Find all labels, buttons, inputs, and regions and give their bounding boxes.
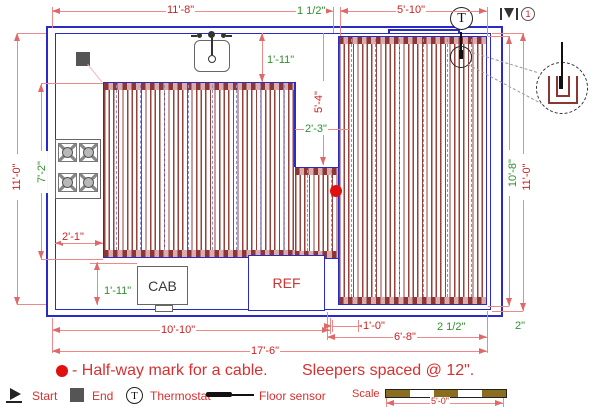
ref-label: REF <box>273 275 301 291</box>
dim-arrow <box>52 348 60 354</box>
dim-bottom-right-width: 6'-8" <box>393 331 417 343</box>
cable-start-triangle-icon <box>504 8 514 18</box>
extension-line <box>41 259 103 260</box>
extension-line <box>487 311 488 353</box>
end-legend-icon <box>70 388 84 402</box>
dim-total-width: 17'-6" <box>250 345 280 357</box>
sleeper-line <box>331 170 332 256</box>
sleeper-line <box>399 39 400 302</box>
extension-line <box>492 311 523 312</box>
burner-circle <box>83 147 94 158</box>
floor-sensor-legend-text: Floor sensor <box>259 389 326 403</box>
dim-line <box>332 326 358 327</box>
dim-bottom-left-width: 10'-10" <box>160 324 196 336</box>
sleeper-line <box>375 39 376 302</box>
scale-label: Scale <box>352 388 380 400</box>
extension-line <box>41 83 103 84</box>
dim-arrow <box>506 298 512 306</box>
cab-handle <box>155 305 173 312</box>
dim-arrow <box>94 297 100 305</box>
dim-arrow <box>14 33 20 41</box>
sink-faucet-handle <box>197 33 202 38</box>
burner-circle <box>62 177 73 188</box>
scale-length-text: 5'-0" <box>430 397 450 407</box>
cab-label: CAB <box>148 278 177 294</box>
sleeper-line <box>351 39 352 302</box>
dim-arrow <box>340 8 348 14</box>
dim-arrow <box>386 400 394 406</box>
sleeper-line <box>116 85 117 255</box>
cab-box: CAB <box>137 266 188 305</box>
dim-arrow <box>324 323 332 329</box>
thermostat-lead-line <box>388 29 390 34</box>
extension-line <box>333 7 334 33</box>
floor-sensor-legend-line <box>232 394 254 396</box>
dim-arrow <box>259 33 265 41</box>
cable-number-badge: 1 <box>521 7 535 21</box>
halfway-mark-dot <box>330 185 342 197</box>
dim-arrow <box>327 334 335 340</box>
cable-number: 1 <box>525 9 530 19</box>
heated-area-middle-strip <box>295 167 340 259</box>
dim-arrow <box>38 251 44 259</box>
dim-arrow <box>259 74 265 82</box>
dim-top-right-width: 5'-10" <box>396 4 426 16</box>
dim-arrow <box>479 334 487 340</box>
dim-arrow <box>520 33 526 41</box>
sleeper-line <box>212 85 213 255</box>
extension-line <box>487 7 488 36</box>
sleeper-line <box>447 39 448 302</box>
dim-right-height: 11'-0" <box>521 154 533 200</box>
dim-arrow <box>38 84 44 92</box>
dim-ref-gap: 1'-0" <box>362 320 386 332</box>
dim-left-height: 11'-0" <box>11 154 23 200</box>
dim-arrow <box>94 262 100 270</box>
dim-stove-gap: 2'-1" <box>61 231 85 243</box>
thermostat-lead-line <box>388 29 458 31</box>
start-legend-text: Start <box>32 389 57 403</box>
thermostat-legend-letter: T <box>131 390 138 402</box>
extension-line <box>17 304 46 305</box>
dim-bottom-edge-gap: 2" <box>514 320 526 332</box>
sleepers-note-text: Sleepers spaced @ 12". <box>302 362 474 380</box>
floor-sensor-legend-icon <box>206 392 232 397</box>
dim-arrow <box>479 348 487 354</box>
stove-burner <box>58 143 77 162</box>
dim-arrow <box>520 303 526 311</box>
end-legend-text: End <box>92 389 113 403</box>
stove-burner <box>79 173 98 192</box>
dim-arrow <box>495 400 503 406</box>
sink-faucet-bar <box>191 35 197 37</box>
extension-line <box>17 33 46 34</box>
dim-arrow <box>14 297 20 305</box>
sleeper-line <box>140 85 141 255</box>
dim-top-offset: 1 1/2" <box>296 5 326 17</box>
halfway-legend-text: - Half-way mark for a cable. <box>72 362 268 380</box>
extension-line <box>492 33 523 34</box>
heating-plan-canvas: REF CAB T 1 <box>0 0 600 417</box>
start-legend-underline <box>6 401 22 403</box>
start-end-bar-icon <box>500 8 502 20</box>
dim-arrow <box>479 8 487 14</box>
thermostat-letter: T <box>457 11 466 27</box>
dim-arrow <box>52 8 60 14</box>
sleeper-line <box>284 85 285 255</box>
heated-area-right <box>338 36 487 305</box>
extension-line <box>488 306 509 307</box>
halfway-legend-dot <box>56 365 68 377</box>
start-end-bar-icon <box>516 8 518 20</box>
sleeper-line <box>423 39 424 302</box>
dim-right-edge-gap: 2 1/2" <box>436 321 466 333</box>
dim-arrow <box>320 157 326 165</box>
sink-spout-line <box>211 37 213 55</box>
dim-cab-depth: 1'-11" <box>103 285 132 297</box>
sink-drain <box>208 55 216 63</box>
detail-sensor-tip <box>559 76 563 89</box>
sink-faucet-bar <box>226 35 232 37</box>
stove-burner <box>79 143 98 162</box>
thermostat-legend-icon: T <box>126 387 143 404</box>
thermostat-legend-text: Thermostat <box>150 389 211 403</box>
dim-counter-depth: 1'-11" <box>266 54 295 66</box>
burner-circle <box>83 177 94 188</box>
dim-heated-right-height: 10'-8" <box>507 150 519 196</box>
sleeper-line <box>260 85 261 255</box>
stove-burner <box>58 173 77 192</box>
burner-circle <box>62 147 73 158</box>
sleeper-line <box>307 170 308 256</box>
dim-arrow <box>95 240 103 246</box>
sleeper-line <box>236 85 237 255</box>
sleeper-line <box>164 85 165 255</box>
dim-heated-left-height: 7'-2" <box>36 151 48 193</box>
stove <box>55 139 101 199</box>
dim-top-width: 11'-8" <box>166 4 195 16</box>
heated-area-left <box>103 82 295 258</box>
ref-box: REF <box>248 255 325 311</box>
notch-edge-line <box>294 82 296 167</box>
sleeper-line <box>188 85 189 255</box>
dim-arrow <box>506 36 512 44</box>
dim-arrow <box>52 327 60 333</box>
dim-notch-width: 2'-3" <box>304 123 328 135</box>
start-legend-icon <box>10 388 21 400</box>
dim-notch-height: 5'-4" <box>313 81 325 123</box>
sleeper-line <box>471 39 472 302</box>
